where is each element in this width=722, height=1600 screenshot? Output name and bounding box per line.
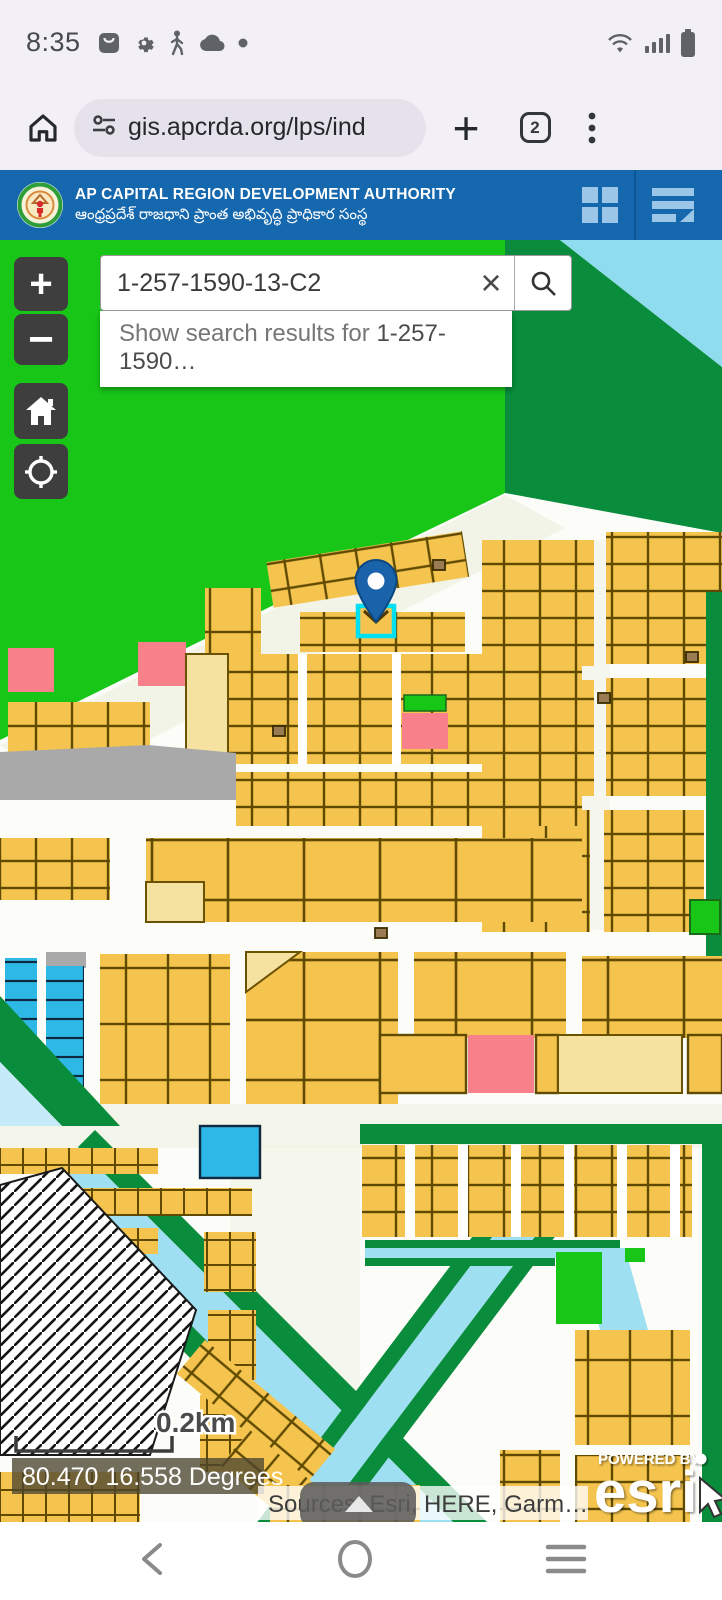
apcrda-logo xyxy=(16,181,64,229)
search-suggestion[interactable]: Show search results for 1-257-1590… xyxy=(100,311,512,387)
url-bar[interactable]: gis.apcrda.org/lps/ind xyxy=(74,99,426,157)
search-input[interactable] xyxy=(101,269,468,298)
search-bar: × xyxy=(100,255,572,311)
accessibility-walk-icon xyxy=(167,30,187,56)
clock: 8:35 xyxy=(26,27,81,58)
map-container: 0.2km 80.470 16.558 Degrees POWERED BY e… xyxy=(0,240,722,1522)
search-icon xyxy=(530,270,557,297)
status-bar: 8:35 xyxy=(0,0,722,85)
authority-title: AP CAPITAL REGION DEVELOPMENT AUTHORITY xyxy=(75,185,456,204)
apps-grid-button[interactable] xyxy=(566,170,634,240)
url-text[interactable]: gis.apcrda.org/lps/ind xyxy=(128,113,366,142)
gear-icon xyxy=(132,31,156,55)
zoom-out-button[interactable]: − xyxy=(14,314,68,365)
search-widget: × Show search results for 1-257-1590… xyxy=(100,255,572,387)
cloud-icon xyxy=(198,33,226,53)
house-icon xyxy=(25,396,57,426)
coordinates-display: 80.470 16.558 Degrees xyxy=(12,1458,283,1494)
map-parcel-blue-pond xyxy=(200,1126,260,1178)
legend-menu-button[interactable] xyxy=(636,170,710,240)
android-nav-bar xyxy=(0,1522,722,1600)
app-header: AP CAPITAL REGION DEVELOPMENT AUTHORITY … xyxy=(0,170,722,240)
browser-toolbar: gis.apcrda.org/lps/ind + 2 xyxy=(0,85,722,170)
map-canvas[interactable]: 0.2km 80.470 16.558 Degrees POWERED BY e… xyxy=(0,240,722,1522)
esri-logo: POWERED BY esri xyxy=(594,1451,707,1522)
locate-button[interactable] xyxy=(14,444,68,499)
crosshair-icon xyxy=(24,455,58,489)
zoom-in-button[interactable]: + xyxy=(14,257,68,311)
clear-search-button[interactable]: × xyxy=(468,256,514,310)
browser-home-button[interactable] xyxy=(20,110,66,146)
coordinates-text: 80.470 16.558 Degrees xyxy=(22,1463,283,1491)
esri-wordmark: esri xyxy=(594,1460,697,1522)
wifi-icon xyxy=(606,31,634,55)
new-tab-button[interactable]: + xyxy=(434,99,498,157)
back-button[interactable] xyxy=(138,1539,164,1584)
scale-label: 0.2km xyxy=(156,1407,235,1438)
app-notification-icon xyxy=(97,31,121,55)
tab-count: 2 xyxy=(520,112,551,143)
authority-title-telugu: ఆంధ్రప్రదేశ్ రాజధాని ప్రాంత అభివృద్ధి ప్… xyxy=(75,206,456,225)
battery-icon xyxy=(680,29,696,57)
phone-screen: 8:35 gis.apcrda.org/lps/ind + 2 xyxy=(0,0,722,1600)
tab-switcher-button[interactable]: 2 xyxy=(506,112,564,143)
recents-button[interactable] xyxy=(545,1542,587,1581)
site-settings-icon[interactable] xyxy=(90,111,118,144)
header-titles: AP CAPITAL REGION DEVELOPMENT AUTHORITY … xyxy=(75,185,456,225)
home-extent-button[interactable] xyxy=(14,383,68,439)
search-button[interactable] xyxy=(515,256,571,310)
browser-menu-button[interactable] xyxy=(572,108,612,148)
dot-icon xyxy=(237,37,249,49)
home-button[interactable] xyxy=(335,1537,375,1586)
signal-icon xyxy=(644,31,670,55)
suggestion-prefix: Show search results for xyxy=(119,320,376,347)
attribution-toggle[interactable] xyxy=(300,1482,416,1522)
